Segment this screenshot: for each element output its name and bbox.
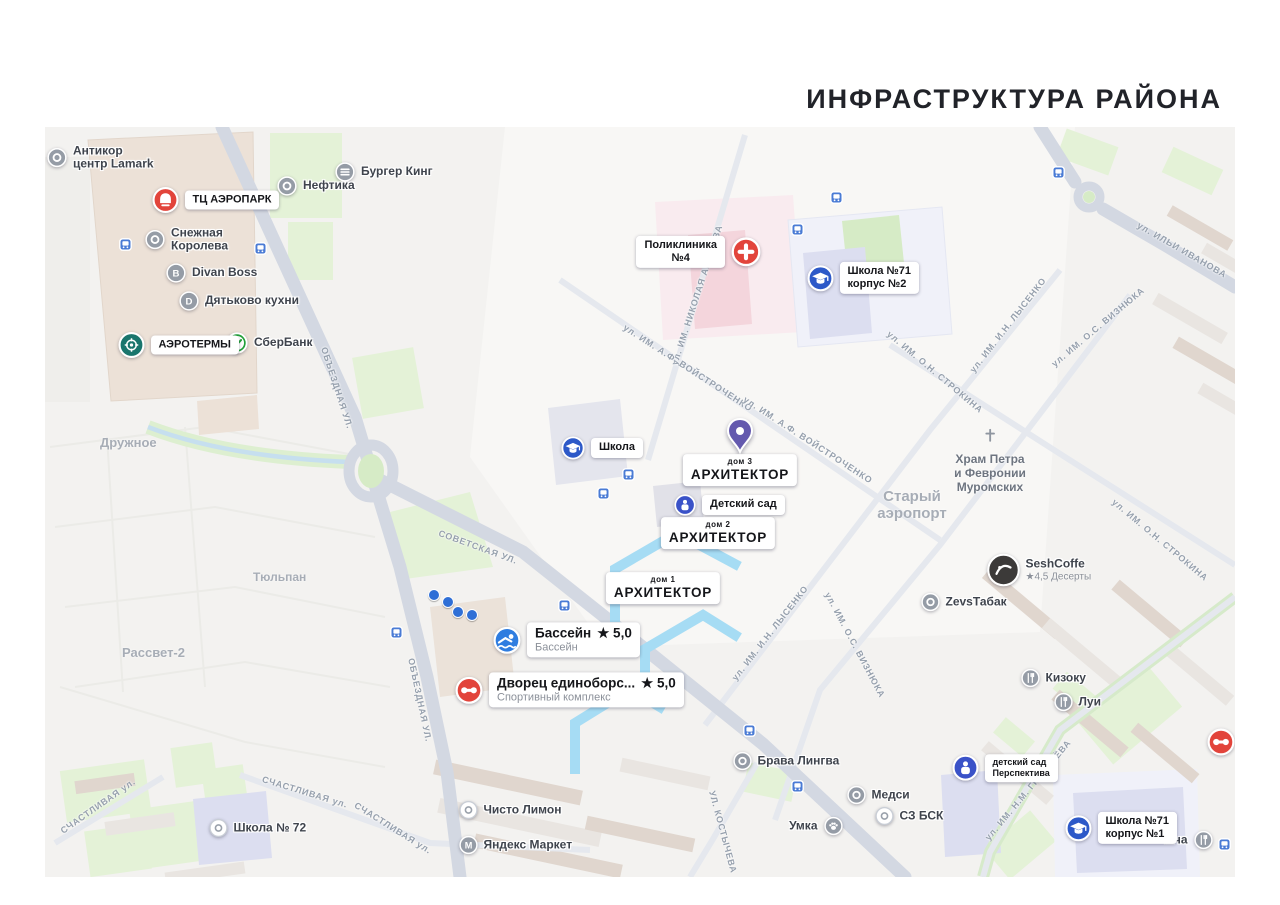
poi-label: детский садПерспектива (985, 754, 1058, 782)
poi-label: Луи (1079, 695, 1101, 708)
poi-poliklinika-4[interactable]: Поликлиника№4 (636, 236, 761, 268)
poi-snezhnaya-koroleva[interactable]: СнежнаяКоролева (145, 227, 228, 254)
cap-icon (1065, 815, 1092, 842)
bus-stop-icon[interactable] (390, 626, 403, 639)
ring-light-icon (875, 807, 894, 826)
poi-label: Дворец единоборс...★ 5,0Спортивный компл… (489, 672, 684, 707)
poi-lui[interactable]: Луи (1054, 693, 1101, 712)
bus-stop-icon[interactable] (791, 223, 804, 236)
poi-label-line: Поликлиника (644, 239, 717, 252)
poi-label: Брава Лингва (758, 754, 840, 767)
poi-label: Антикорцентр Lamark (73, 145, 154, 172)
poi-zevstabak[interactable]: ZevsТабак (921, 593, 1007, 612)
poi-label: Школа № 72 (234, 821, 307, 834)
poi-school-71-k1[interactable]: Школа №71корпус №1 (1065, 812, 1178, 844)
poi-label: Нефтика (303, 179, 355, 192)
poi-aerotermy[interactable]: АЭРОТЕРМЫ (118, 332, 239, 359)
bus-stop-icon[interactable] (558, 599, 571, 612)
dumb-icon (1207, 728, 1235, 756)
bus-stop-icon[interactable] (254, 242, 267, 255)
poi-sz-bsk[interactable]: СЗ БСК (875, 807, 944, 826)
dark-logo-icon (987, 554, 1020, 587)
poi-dot (442, 596, 454, 608)
poi-label: Детский сад (702, 495, 785, 514)
letter-icon: B (166, 263, 186, 283)
svg-text:M: M (464, 840, 472, 850)
house-1-label[interactable]: дом 1АРХИТЕКТОР (606, 572, 720, 604)
poi-label: Divan Boss (192, 266, 257, 279)
poi-kizoku[interactable]: Кизоку (1021, 669, 1086, 688)
map-pin-house-3[interactable] (725, 417, 755, 455)
bus-stop-icon[interactable] (830, 191, 843, 204)
poi-dot (452, 606, 464, 618)
dumb-icon (455, 676, 483, 704)
ring-light-icon (209, 819, 228, 838)
house-project-name: АРХИТЕКТОР (691, 467, 789, 483)
poi-label: Кизоку (1046, 671, 1086, 684)
ring-light-icon (459, 801, 478, 820)
fork-icon (1021, 669, 1040, 688)
pool-icon (493, 626, 521, 654)
cap-icon (561, 436, 585, 460)
ring-icon (145, 230, 165, 250)
poi-label: ТЦ АЭРОПАРК (185, 190, 280, 209)
bus-stop-icon[interactable] (119, 238, 132, 251)
bus-stop-icon[interactable] (791, 780, 804, 793)
area-label: Старый аэропорт (877, 488, 947, 522)
house-3-label[interactable]: дом 3АРХИТЕКТОР (683, 454, 797, 486)
house-number: дом 1 (614, 575, 712, 585)
poi-brava-lingva[interactable]: Брава Лингва (733, 752, 840, 771)
ring-icon (921, 593, 940, 612)
poi-seshcoffe[interactable]: SeshCoffe★4,5 Десерты (987, 554, 1092, 587)
house-number: дом 3 (691, 457, 789, 467)
poi-label-line: №4 (644, 252, 717, 265)
poi-label: СберБанк (254, 336, 312, 349)
poi-rating: ★ 5,0 (641, 675, 676, 690)
poi-label: Умка (789, 819, 817, 832)
poi-label: Бургер Кинг (361, 165, 433, 178)
poi-sport-edge[interactable] (1207, 728, 1235, 756)
poi-neftika[interactable]: Нефтика (277, 176, 355, 196)
poi-umka[interactable]: Умка (789, 817, 842, 836)
poi-label: АЭРОТЕРМЫ (151, 335, 239, 354)
poi-title-row: Бассейн★ 5,0 (535, 625, 632, 641)
poi-name: Divan Boss (192, 266, 257, 279)
ring-icon (47, 148, 67, 168)
poi-school-71-k2[interactable]: Школа №71корпус №2 (807, 262, 920, 294)
poi-bassein[interactable]: Бассейн★ 5,0Бассейн (493, 622, 640, 657)
poi-label: ZevsТабак (946, 595, 1007, 608)
poi-label-line: Перспектива (993, 768, 1050, 779)
poi-label-line: корпус №1 (1106, 828, 1170, 841)
house-project-name: АРХИТЕКТОР (614, 585, 712, 601)
page-title: ИНФРАСТРУКТУРА РАЙОНА (806, 84, 1222, 115)
church-icon (979, 435, 1001, 452)
ring-icon (733, 752, 752, 771)
poi-dvorets-edinoborstv[interactable]: Дворец единоборс...★ 5,0Спортивный компл… (455, 672, 684, 707)
plus-icon (731, 237, 761, 267)
poi-dot (428, 589, 440, 601)
poi-name: Школа № 72 (234, 821, 307, 834)
poi-subtitle: ★4,5 Десерты (1026, 571, 1092, 582)
poi-label: Бассейн★ 5,0Бассейн (527, 622, 640, 657)
poi-name: Бургер Кинг (361, 165, 433, 178)
fork-icon (1054, 693, 1073, 712)
poi-school-72[interactable]: Школа № 72 (209, 819, 307, 838)
poi-title: Бассейн (535, 625, 591, 640)
area-label: Рассвет-2 (122, 645, 185, 660)
poi-label: СЗ БСК (900, 809, 944, 822)
poi-name: СберБанк (254, 336, 312, 349)
bus-stop-icon[interactable] (1218, 838, 1231, 851)
poi-antikor-lamark[interactable]: Антикорцентр Lamark (47, 145, 154, 172)
area-label: Тюльпан (253, 570, 306, 584)
poi-title-row: Дворец единоборс...★ 5,0 (497, 675, 676, 691)
ring-icon (847, 786, 866, 805)
kid-icon (674, 494, 696, 516)
spa-icon (118, 332, 145, 359)
poi-name: Умка (789, 819, 817, 832)
poi-label-line: детский сад (993, 757, 1050, 768)
poi-chisto-limon[interactable]: Чисто Лимон (459, 801, 562, 820)
poi-divan-boss[interactable]: BDivan Boss (166, 263, 257, 283)
poi-title: Дворец единоборс... (497, 675, 635, 690)
poi-label-line: центр Lamark (73, 158, 154, 171)
poi-yandex-market[interactable]: MЯндекс Маркет (459, 836, 573, 855)
svg-text:D: D (186, 296, 193, 307)
poi-sberbank[interactable]: СберБанк (226, 332, 312, 354)
kid-icon (952, 755, 979, 782)
poi-name: SeshCoffe (1026, 558, 1092, 571)
poi-name: СЗ БСК (900, 809, 944, 822)
poi-label-line: Школа №71 (1106, 815, 1170, 828)
poi-name: Кизоку (1046, 671, 1086, 684)
poi-name: Яндекс Маркет (484, 838, 573, 851)
poi-subtitle: Спортивный комплекс (497, 692, 676, 705)
poi-label: Яндекс Маркет (484, 838, 573, 851)
poi-label: Школа №71корпус №2 (840, 262, 920, 294)
poi-label: Медси (872, 788, 910, 801)
poi-label-line: корпус №2 (848, 278, 912, 291)
poi-name: Луи (1079, 695, 1101, 708)
poi-detsad-perspektiva[interactable]: детский садПерспектива (952, 754, 1058, 782)
poi-label: SeshCoffe★4,5 Десерты (1026, 558, 1092, 582)
bell-icon (152, 187, 179, 214)
poi-name: Нефтика (303, 179, 355, 192)
poi-label-line: Школа №71 (848, 265, 912, 278)
letter-icon: M (459, 836, 478, 855)
house-2-label[interactable]: дом 2АРХИТЕКТОР (661, 517, 775, 549)
paw-icon (824, 817, 843, 836)
letter-icon: D (179, 291, 199, 311)
poi-name: ZevsТабак (946, 595, 1007, 608)
poi-dot (466, 609, 478, 621)
poi-school[interactable]: Школа (561, 436, 643, 460)
poi-dyatkovo-kuhni[interactable]: DДятьково кухни (179, 291, 299, 311)
poi-name: Дятьково кухни (205, 294, 299, 307)
bus-stop-icon[interactable] (622, 468, 635, 481)
poi-medsi[interactable]: Медси (847, 786, 910, 805)
poi-rating: ★ 5,0 (597, 625, 632, 640)
poi-label: Чисто Лимон (484, 803, 562, 816)
poi-label: Храм Петра и Февронии Муромских (954, 453, 1026, 494)
poi-label: Поликлиника№4 (636, 236, 725, 268)
poi-name: Чисто Лимон (484, 803, 562, 816)
bus-stop-icon[interactable] (597, 487, 610, 500)
house-project-name: АРХИТЕКТОР (669, 530, 767, 546)
ring-icon (277, 176, 297, 196)
poi-detsky-sad[interactable]: Детский сад (674, 494, 785, 516)
poi-label: СнежнаяКоролева (171, 227, 228, 254)
house-number: дом 2 (669, 520, 767, 530)
area-label: Дружное (100, 435, 157, 450)
map-canvas[interactable]: ОБЪЕЗДНАЯ УЛ.ОБЪЕЗДНАЯ УЛ.СОВЕТСКАЯ УЛ.у… (45, 127, 1235, 877)
poi-hram[interactable]: Храм Петра и Февронии Муромских (954, 426, 1026, 494)
poi-label: Дятьково кухни (205, 294, 299, 307)
cap-icon (807, 265, 834, 292)
poi-label: Школа №71корпус №1 (1098, 812, 1178, 844)
poi-name: Медси (872, 788, 910, 801)
bus-stop-icon[interactable] (743, 724, 756, 737)
svg-text:B: B (173, 268, 180, 279)
poi-name: Брава Лингва (758, 754, 840, 767)
poi-label: Школа (591, 438, 643, 457)
poi-tc-aeropark[interactable]: ТЦ АЭРОПАРК (152, 187, 280, 214)
bus-stop-icon[interactable] (1052, 166, 1065, 179)
poi-subtitle: Бассейн (535, 642, 632, 655)
fork-icon (1194, 831, 1213, 850)
poi-label-line: Королева (171, 240, 228, 253)
